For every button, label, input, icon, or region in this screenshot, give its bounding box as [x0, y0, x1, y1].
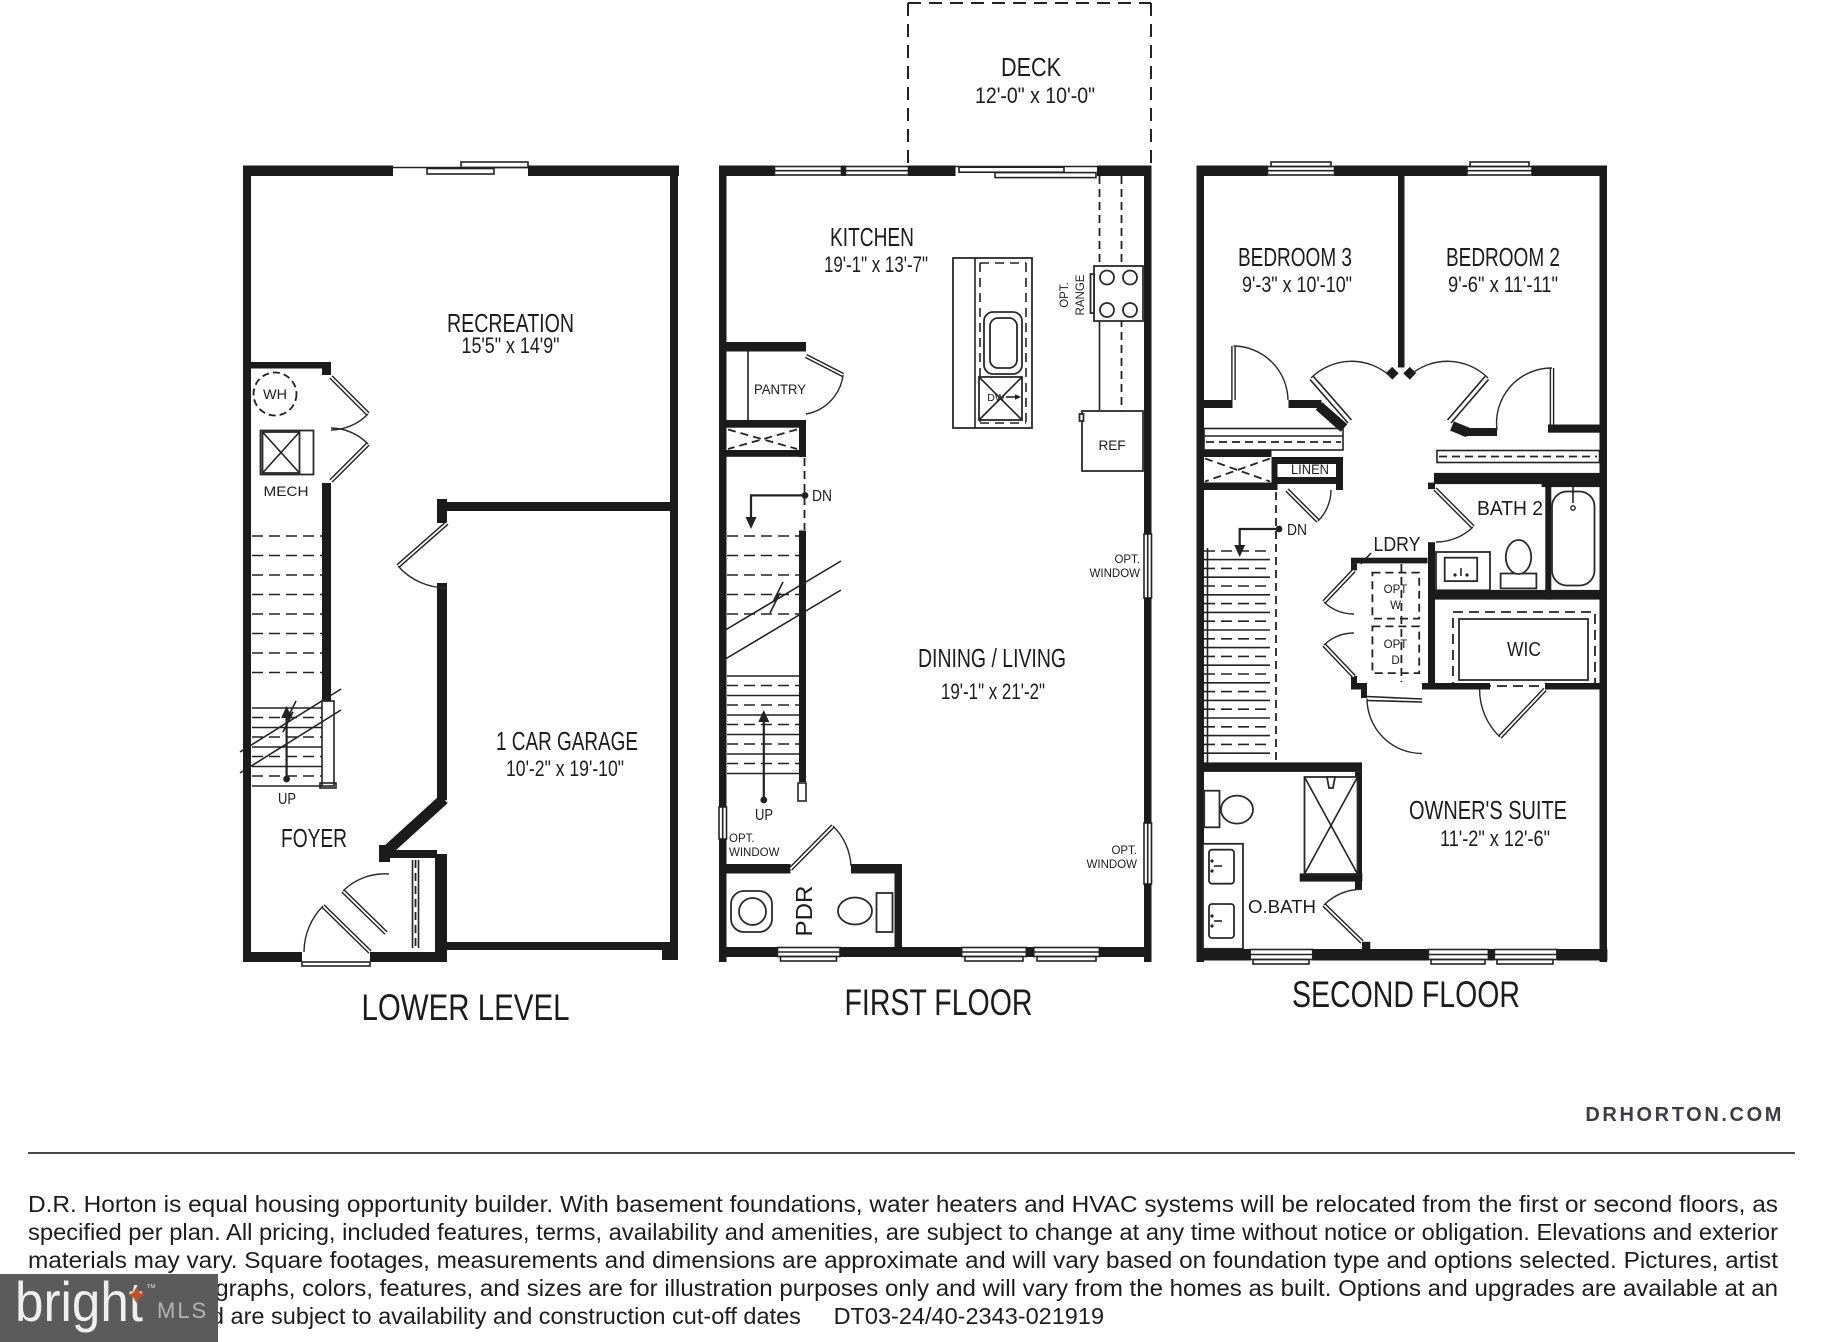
svg-text:BEDROOM 3: BEDROOM 3 — [1238, 242, 1352, 272]
svg-text:REF: REF — [1099, 438, 1126, 453]
svg-text:specified per plan. All pricin: specified per plan. All pricing, include… — [28, 1219, 1778, 1245]
svg-text:OPT.: OPT. — [1111, 845, 1137, 857]
svg-text:WIC: WIC — [1507, 639, 1541, 661]
svg-text:O.BATH: O.BATH — [1248, 897, 1316, 917]
svg-text:OPT.: OPT. — [1059, 282, 1071, 308]
svg-text:19'-1" x 13'-7": 19'-1" x 13'-7" — [824, 252, 928, 277]
svg-text:MLS: MLS — [157, 1298, 208, 1323]
svg-text:OPT.: OPT. — [729, 833, 755, 845]
svg-text:D: D — [1391, 655, 1399, 667]
svg-text:D.R. Horton is equal housing o: D.R. Horton is equal housing opportunity… — [28, 1191, 1778, 1217]
svg-text:FOYER: FOYER — [281, 825, 347, 853]
svg-text:DECK: DECK — [1001, 52, 1062, 82]
svg-text:OWNER'S SUITE: OWNER'S SUITE — [1409, 795, 1567, 825]
svg-text:SECOND FLOOR: SECOND FLOOR — [1292, 973, 1520, 1015]
svg-text:materials may vary. Square foo: materials may vary. Square footages, mea… — [28, 1247, 1778, 1273]
svg-text:W: W — [1390, 600, 1401, 612]
svg-text:9'-6" x 11'-11": 9'-6" x 11'-11" — [1448, 272, 1558, 297]
svg-text:9'-3" x 10'-10": 9'-3" x 10'-10" — [1242, 272, 1352, 297]
svg-text:WINDOW: WINDOW — [729, 847, 780, 859]
svg-text:WINDOW: WINDOW — [1090, 568, 1141, 580]
svg-text:PDR: PDR — [791, 886, 817, 937]
svg-text:bright: bright — [15, 1270, 143, 1333]
svg-text:OPT: OPT — [1384, 584, 1408, 596]
svg-text:WH: WH — [263, 386, 287, 402]
svg-text:DW: DW — [987, 392, 1005, 404]
svg-text:renderings, photographs, color: renderings, photographs, colors, feature… — [28, 1275, 1778, 1301]
svg-text:MECH: MECH — [264, 483, 309, 499]
svg-text:1 CAR GARAGE: 1 CAR GARAGE — [496, 726, 638, 756]
svg-text:OPT.: OPT. — [1114, 554, 1140, 566]
svg-text:10'-2" x 19'-10": 10'-2" x 19'-10" — [506, 756, 624, 781]
svg-text:RANGE: RANGE — [1075, 274, 1087, 315]
svg-text:UP: UP — [278, 791, 296, 808]
svg-text:DINING / LIVING: DINING / LIVING — [918, 643, 1066, 673]
svg-text:™: ™ — [146, 1283, 156, 1294]
svg-text:UP: UP — [755, 807, 773, 824]
svg-text:LDRY: LDRY — [1374, 534, 1421, 556]
svg-text:LINEN: LINEN — [1291, 461, 1329, 477]
svg-text:OPT: OPT — [1384, 639, 1408, 651]
svg-text:KITCHEN: KITCHEN — [830, 222, 914, 252]
svg-text:15'5" x 14'9": 15'5" x 14'9" — [462, 333, 560, 358]
svg-text:DN: DN — [1287, 522, 1307, 539]
svg-text:WINDOW: WINDOW — [1087, 859, 1138, 871]
svg-text:12'-0" x 10'-0": 12'-0" x 10'-0" — [975, 83, 1095, 108]
svg-text:11'-2" x 12'-6": 11'-2" x 12'-6" — [1440, 826, 1550, 851]
svg-text:19'-1" x 21'-2": 19'-1" x 21'-2" — [941, 679, 1045, 704]
svg-text:FIRST FLOOR: FIRST FLOOR — [845, 981, 1033, 1023]
svg-text:PANTRY: PANTRY — [754, 381, 807, 397]
svg-text:DRHORTON.COM: DRHORTON.COM — [1585, 1104, 1784, 1126]
svg-text:BEDROOM 2: BEDROOM 2 — [1446, 242, 1560, 272]
svg-text:LOWER LEVEL: LOWER LEVEL — [362, 986, 570, 1028]
svg-text:BATH 2: BATH 2 — [1477, 498, 1543, 520]
svg-text:DN: DN — [812, 488, 832, 505]
